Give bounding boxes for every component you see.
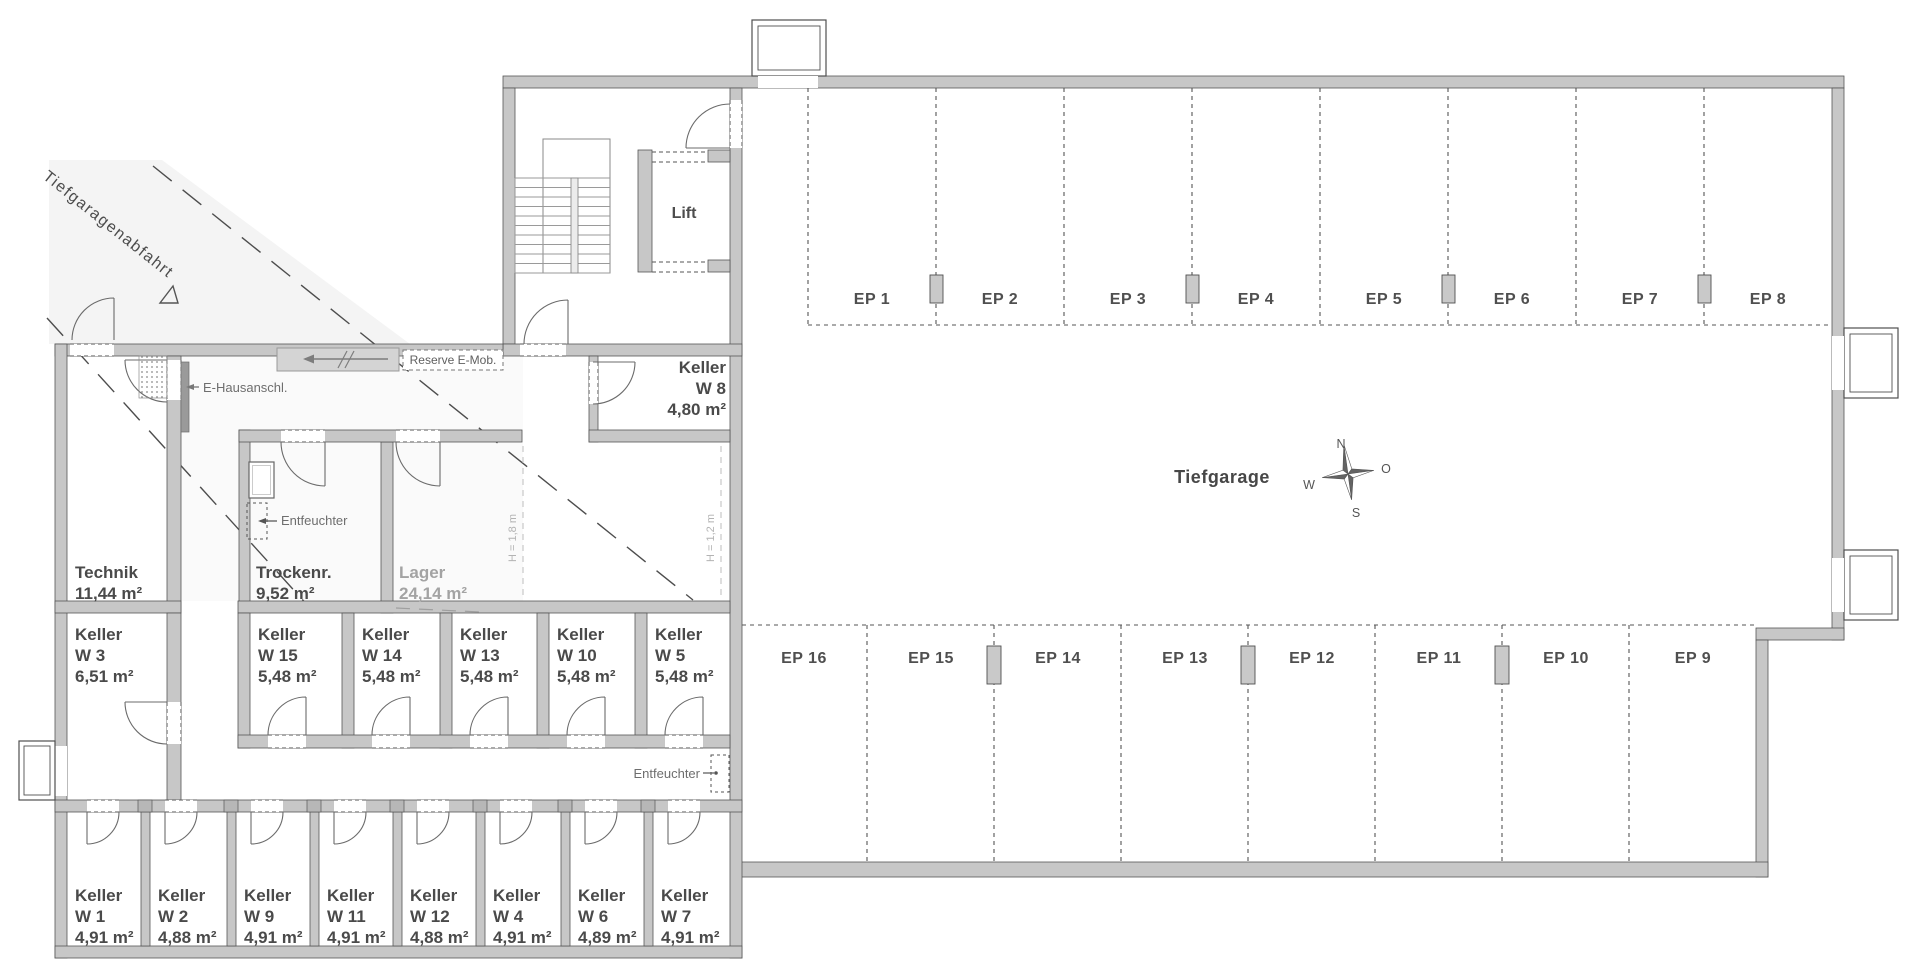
- parking-spot-ep12-label: EP 12: [1289, 650, 1335, 667]
- compass-icon: N O S W: [1303, 437, 1391, 520]
- garage-parking: EP 1 EP 2 EP 3 EP 4 EP 5 EP 6 EP 7 EP 8 …: [742, 88, 1832, 862]
- room-keller-w11-area: 4,91 m²: [327, 928, 386, 947]
- room-keller-w13-label: Keller: [460, 625, 508, 644]
- floorplan-canvas: Tiefgaragenabfahrt: [0, 0, 1920, 977]
- parking-spot-ep11-label: EP 11: [1417, 650, 1462, 667]
- room-keller-w12-area: 4,88 m²: [410, 928, 469, 947]
- room-technik-area: 11,44 m²: [75, 584, 142, 603]
- parking-spot-ep6-label: EP 6: [1494, 291, 1530, 308]
- room-keller-w13-unit: W 13: [460, 646, 500, 665]
- room-keller-w4-label: Keller: [493, 886, 541, 905]
- room-keller-w3-label: Keller: [75, 625, 123, 644]
- door-keller-w6: [585, 812, 617, 844]
- parking-spot-ep7-label: EP 7: [1622, 291, 1658, 308]
- room-keller-w9-area: 4,91 m²: [244, 928, 303, 947]
- entfeuchter-label-1: Entfeuchter: [281, 513, 348, 528]
- door-keller-w2: [165, 812, 197, 844]
- entfeuchter-arrow-2-icon: [714, 771, 718, 775]
- door-keller-w8: [593, 362, 635, 404]
- height-label-12: H = 1,2 m: [705, 514, 717, 562]
- compass-west-label: W: [1303, 478, 1315, 492]
- parking-spot-ep9-label: EP 9: [1675, 650, 1711, 667]
- room-lager-label: Lager: [399, 563, 446, 582]
- entfeuchter-label-2: Entfeuchter: [634, 766, 701, 781]
- room-keller-w6-label: Keller: [578, 886, 626, 905]
- room-keller-w1-area: 4,91 m²: [75, 928, 134, 947]
- room-keller-w8-unit: W 8: [696, 379, 726, 398]
- parking-spot-ep1-label: EP 1: [854, 291, 890, 308]
- room-keller-w9-unit: W 9: [244, 907, 274, 926]
- lift: Lift: [638, 150, 730, 272]
- door-lobby-corridor: [524, 300, 568, 344]
- light-shaft-top: [752, 20, 826, 76]
- room-keller-w11-label: Keller: [327, 886, 375, 905]
- parking-spot-ep8-label: EP 8: [1750, 291, 1786, 308]
- parking-spot-ep13-label: EP 13: [1162, 650, 1208, 667]
- floorplan-svg: Tiefgaragenabfahrt: [0, 0, 1920, 977]
- parking-spot-ep5-label: EP 5: [1366, 291, 1402, 308]
- room-keller-w5-area: 5,48 m²: [655, 667, 714, 686]
- door-keller-w5: [665, 697, 703, 735]
- e-hausanschluss-label: E-Hausanschl.: [203, 380, 288, 395]
- light-shaft-right-2: [1844, 550, 1898, 620]
- door-keller-w7: [668, 812, 700, 844]
- door-keller-w3: [125, 702, 167, 744]
- room-technik-label: Technik: [75, 563, 139, 582]
- room-keller-w11-unit: W 11: [327, 907, 366, 926]
- room-keller-w10-area: 5,48 m²: [557, 667, 616, 686]
- room-keller-w14-area: 5,48 m²: [362, 667, 421, 686]
- room-keller-w10-unit: W 10: [557, 646, 597, 665]
- parking-spot-ep2-label: EP 2: [982, 291, 1018, 308]
- room-keller-w15-unit: W 15: [258, 646, 298, 665]
- room-keller-w12-label: Keller: [410, 886, 458, 905]
- room-keller-w3-area: 6,51 m²: [75, 667, 134, 686]
- parking-spot-ep3-label: EP 3: [1110, 291, 1146, 308]
- parking-spot-ep16-label: EP 16: [781, 650, 827, 667]
- compass-north-label: N: [1336, 437, 1345, 451]
- parking-spot-ep15-label: EP 15: [908, 650, 954, 667]
- compass-south-label: S: [1352, 506, 1360, 520]
- door-keller-w11: [334, 812, 366, 844]
- door-keller-w1: [87, 812, 119, 844]
- room-keller-w10-label: Keller: [557, 625, 605, 644]
- stairs-icon: [515, 139, 610, 273]
- shaft-hatch: [139, 356, 167, 398]
- room-keller-w1-unit: W 1: [75, 907, 105, 926]
- room-keller-w6-area: 4,89 m²: [578, 928, 637, 947]
- ramp-tint: [49, 160, 410, 344]
- room-keller-w7-unit: W 7: [661, 907, 691, 926]
- door-keller-w15: [268, 697, 306, 735]
- room-keller-w15-label: Keller: [258, 625, 306, 644]
- door-keller-w14: [372, 697, 410, 735]
- room-keller-w5-unit: W 5: [655, 646, 685, 665]
- room-keller-w6-unit: W 6: [578, 907, 608, 926]
- room-keller-w4-area: 4,91 m²: [493, 928, 552, 947]
- room-lager-area: 24,14 m²: [399, 584, 467, 603]
- room-keller-w5-label: Keller: [655, 625, 703, 644]
- room-keller-w2-unit: W 2: [158, 907, 188, 926]
- height-label-18: H = 1,8 m: [507, 514, 519, 562]
- room-keller-w8-area: 4,80 m²: [667, 400, 726, 419]
- room-keller-w14-unit: W 14: [362, 646, 402, 665]
- room-keller-w8-label: Keller: [679, 358, 727, 377]
- room-keller-w2-area: 4,88 m²: [158, 928, 217, 947]
- room-keller-w12-unit: W 12: [410, 907, 450, 926]
- light-shaft-right-1: [1844, 328, 1898, 398]
- room-keller-w7-area: 4,91 m²: [661, 928, 720, 947]
- room-keller-w15-area: 5,48 m²: [258, 667, 317, 686]
- e-panel: [181, 362, 189, 432]
- lift-label: Lift: [672, 205, 698, 222]
- reserve-emob-label: Reserve E-Mob.: [410, 353, 497, 367]
- door-keller-w9: [251, 812, 283, 844]
- room-keller-w3-unit: W 3: [75, 646, 105, 665]
- room-keller-w2-label: Keller: [158, 886, 206, 905]
- door-keller-w10: [567, 697, 605, 735]
- room-trockenraum-label: Trockenr.: [256, 563, 332, 582]
- parking-spot-ep10-label: EP 10: [1543, 650, 1589, 667]
- door-keller-w13: [470, 697, 508, 735]
- parking-spot-ep4-label: EP 4: [1238, 291, 1274, 308]
- garage-label: Tiefgarage: [1174, 467, 1270, 487]
- room-keller-w14-label: Keller: [362, 625, 410, 644]
- room-keller-w1-label: Keller: [75, 886, 123, 905]
- room-keller-w4-unit: W 4: [493, 907, 524, 926]
- room-keller-w13-area: 5,48 m²: [460, 667, 519, 686]
- door-keller-w4: [500, 812, 532, 844]
- parking-spot-ep14-label: EP 14: [1035, 650, 1081, 667]
- compass-east-label: O: [1381, 462, 1391, 476]
- door-keller-w12: [417, 812, 449, 844]
- room-keller-w9-label: Keller: [244, 886, 292, 905]
- room-trockenraum-area: 9,52 m²: [256, 584, 315, 603]
- door-lobby-garage: [686, 104, 730, 148]
- room-keller-w7-label: Keller: [661, 886, 709, 905]
